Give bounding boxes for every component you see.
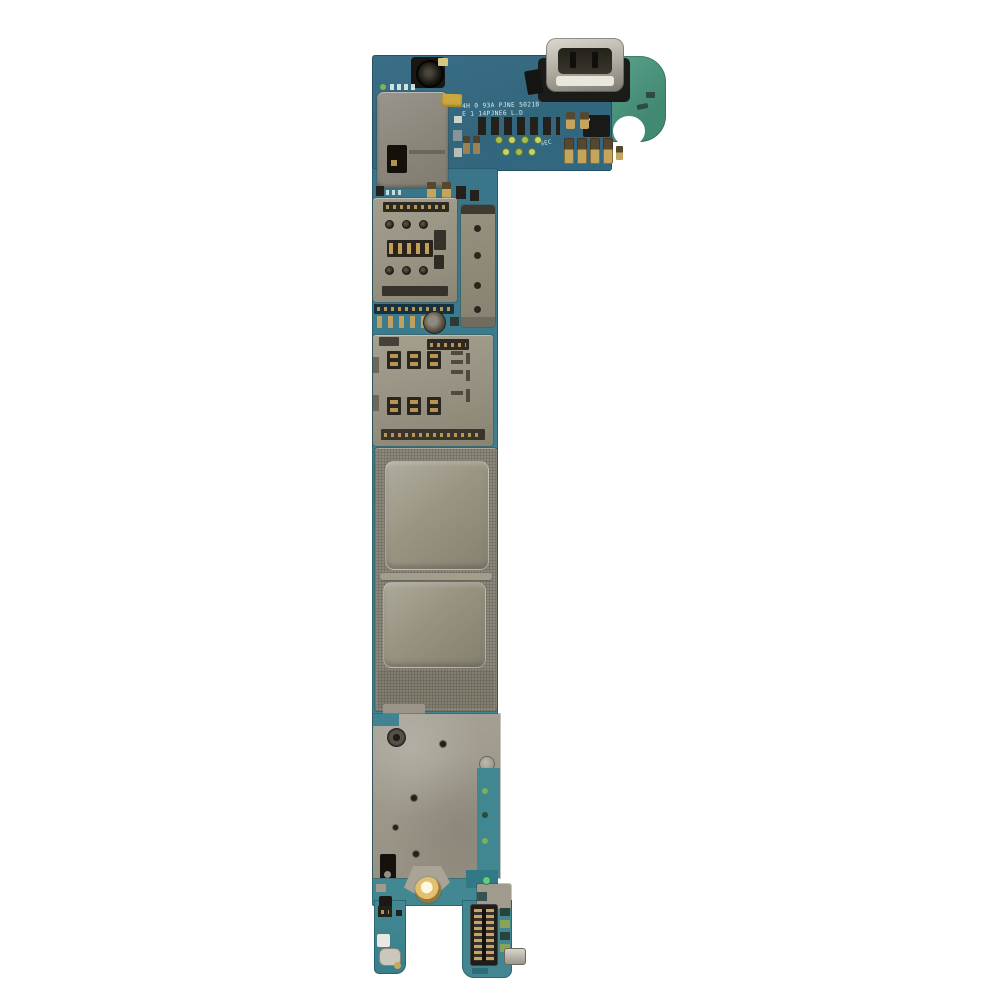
via-dot — [534, 136, 542, 144]
solder-pad — [427, 182, 436, 199]
strip-dot — [474, 282, 481, 289]
usb-contact — [592, 52, 598, 68]
contact-comb — [407, 397, 421, 415]
shield-hole — [410, 794, 418, 802]
etch-mark — [466, 389, 470, 402]
usb-lip — [556, 76, 614, 86]
strip-dot — [474, 225, 481, 232]
tab-mark — [646, 92, 655, 98]
component-chip — [453, 130, 462, 141]
shield-hole — [412, 850, 420, 858]
component-chip — [376, 186, 384, 196]
bracket-notch — [477, 892, 487, 901]
solder-pad — [590, 138, 600, 164]
mic-ring — [423, 311, 446, 334]
emi-shield-region — [375, 448, 497, 711]
solder-pad — [463, 136, 470, 154]
sim-socket-1 — [373, 198, 457, 302]
contact-comb — [387, 351, 401, 369]
side-component — [500, 908, 510, 916]
screw-ring — [387, 728, 406, 747]
silk-dashes — [390, 84, 418, 90]
contact-comb — [427, 351, 441, 369]
via-dot — [515, 148, 523, 156]
via-dot — [502, 148, 510, 156]
etch-mark — [451, 351, 463, 355]
metal-component — [376, 884, 386, 892]
strip-cap — [461, 205, 495, 214]
component-chip — [378, 906, 392, 917]
edge-tick — [472, 968, 488, 974]
via-dot — [521, 136, 529, 144]
solder-pad — [580, 112, 589, 129]
etch-mark — [451, 391, 463, 395]
socket-corner-mark — [379, 337, 399, 346]
shield-divider — [380, 573, 492, 580]
contact-comb — [407, 351, 421, 369]
via-dot — [482, 838, 488, 844]
socket-edge-tab — [373, 395, 379, 411]
side-component — [500, 920, 510, 928]
sim-socket-2 — [373, 335, 493, 446]
flex-stub — [438, 58, 448, 66]
component-chip — [396, 910, 402, 916]
solder-pad — [564, 138, 574, 164]
tab-notch — [613, 116, 645, 146]
socket-arm — [434, 255, 444, 269]
component-chip — [450, 317, 459, 326]
silk-dashes — [386, 190, 404, 195]
shield-bottom-band — [378, 670, 494, 708]
green-led-dot — [482, 876, 491, 885]
test-window — [380, 854, 396, 878]
chip-row — [478, 117, 560, 135]
contact-comb — [387, 397, 401, 415]
contact-comb — [427, 397, 441, 415]
side-component — [500, 932, 510, 940]
b2b-center-slot — [482, 909, 486, 961]
socket-edge-tab — [373, 357, 379, 373]
via-dot — [482, 788, 488, 794]
via-dot — [528, 148, 536, 156]
pcb-step — [373, 714, 399, 726]
socket-hole — [419, 266, 428, 275]
strip-dot — [474, 252, 481, 259]
component-chip — [482, 812, 488, 818]
b2b-connector — [470, 904, 498, 966]
solder-pad — [473, 136, 480, 154]
etch-mark — [451, 370, 463, 374]
contact-comb — [387, 240, 433, 257]
socket-bottom-bar — [381, 429, 485, 440]
socket-hole — [402, 220, 411, 229]
window-dot — [384, 871, 391, 878]
board-connector-strip — [461, 205, 495, 327]
photo-canvas: 4H 0 93A PJNE 5021B E 1 14PJNE6 L.D SEC — [0, 0, 1000, 1000]
strip-foot — [461, 317, 495, 327]
socket-latch-bar — [427, 339, 469, 350]
window-contact — [391, 160, 397, 166]
usb-contact — [570, 52, 576, 68]
comb-contacts — [389, 243, 431, 254]
component-chip — [454, 148, 462, 157]
solder-pad — [603, 138, 613, 164]
pcb-cutout-right — [477, 768, 500, 878]
usb-opening — [558, 48, 612, 74]
socket-hole — [385, 266, 394, 275]
component-chip — [456, 186, 466, 199]
via-dot — [508, 136, 516, 144]
shield-window — [387, 145, 407, 173]
solder-pad — [577, 138, 587, 164]
white-pad — [377, 934, 390, 947]
screw-mount — [504, 948, 526, 965]
rear-shield — [373, 714, 500, 878]
via-dot — [495, 136, 503, 144]
component-chip — [470, 190, 479, 201]
top-shield-can — [377, 92, 448, 188]
solder-pad — [566, 112, 575, 129]
shield-hole — [439, 740, 447, 748]
emi-shield-upper — [385, 461, 489, 570]
dark-bar — [374, 304, 454, 314]
via-dot — [380, 84, 386, 90]
motherboard: 4H 0 93A PJNE 5021B E 1 14PJNE6 L.D SEC — [0, 0, 1000, 1000]
socket-hole — [385, 220, 394, 229]
socket-hole — [419, 220, 428, 229]
etch-mark — [466, 370, 470, 381]
etch-mark — [466, 353, 470, 364]
etch-mark — [451, 360, 463, 364]
socket-latch-bar — [383, 202, 449, 212]
emi-shield-lower — [383, 582, 486, 668]
strip-dot — [474, 306, 481, 313]
socket-arm — [434, 230, 446, 250]
component-chip — [454, 116, 462, 123]
solder-pad — [616, 146, 623, 160]
socket-hole — [402, 266, 411, 275]
solder-dot — [394, 962, 401, 969]
socket-bottom-bar — [382, 286, 448, 296]
solder-pad — [442, 182, 451, 199]
shield-hole — [392, 824, 399, 831]
yellow-sticker — [442, 94, 462, 108]
shield-seam — [409, 150, 445, 154]
gold-screw-hole — [415, 877, 441, 903]
